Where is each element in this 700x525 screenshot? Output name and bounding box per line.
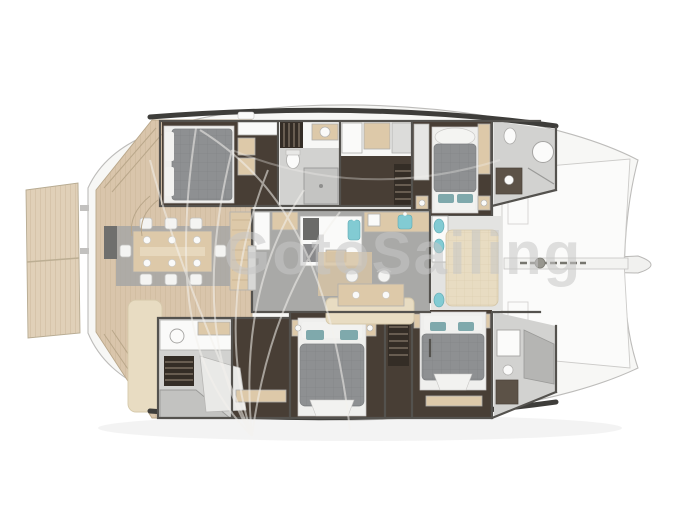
bed-pillow [430,322,446,331]
table-plate [353,292,360,299]
bottom-stairs [385,310,412,418]
top-hull-interior [160,121,556,216]
bed-duvet [422,334,484,380]
floorplan-canvas: GotoSailing [0,0,700,525]
bed-pillow [458,322,474,331]
bottom-hull-interior [158,310,556,418]
faucet [403,212,407,216]
shower-drain [319,184,323,188]
bed-pillow [306,330,324,340]
cabinet [342,123,362,153]
bed-pillow [340,330,358,340]
bottom-mid-cabin [290,312,385,418]
bed-pillow [165,132,174,161]
lamp [367,325,373,331]
lamp [419,200,425,206]
stairs [164,356,194,386]
catamaran-floorplan: GotoSailing [0,0,700,525]
bar-sink [434,293,444,307]
bed-pillow [438,194,454,203]
bed-foot-sheet [434,374,472,390]
watermark-text: GotoSailing [224,220,583,287]
wardrobe [414,124,429,180]
deck-fitting [238,112,254,119]
basin-round [170,329,184,343]
vanity [496,380,518,404]
table-plate [383,292,390,299]
toilet [504,128,516,144]
lamp [481,200,487,206]
swim-platform [26,183,89,338]
cabinet [364,123,390,149]
shower-pan [497,330,520,356]
counter-wood [198,322,230,335]
wardrobe [238,122,278,135]
bench-foot [426,396,482,406]
stairs [280,122,303,148]
table-runner [140,247,205,256]
top-aft-cabin [162,121,278,206]
side-console [104,226,117,259]
bed-duvet [300,344,364,406]
bottom-forward-cabin [412,310,492,418]
top-corridor [340,123,414,206]
lamp [295,325,301,331]
cabinet [392,123,412,153]
basin [503,365,513,375]
shower-round [533,142,554,163]
bed-pillow [165,167,174,196]
bed-pillow [457,194,473,203]
top-forward-cabin [412,121,492,216]
toilet-tank [286,150,300,155]
bottom-forward-bathroom [494,312,556,416]
salon-dining-table [338,284,404,306]
platform-hinge [80,248,89,254]
platform-hinge [80,205,89,211]
top-companionway-stairs [280,122,303,148]
basin [505,176,514,185]
bed-foot-roll [435,128,475,146]
basin [320,127,330,137]
